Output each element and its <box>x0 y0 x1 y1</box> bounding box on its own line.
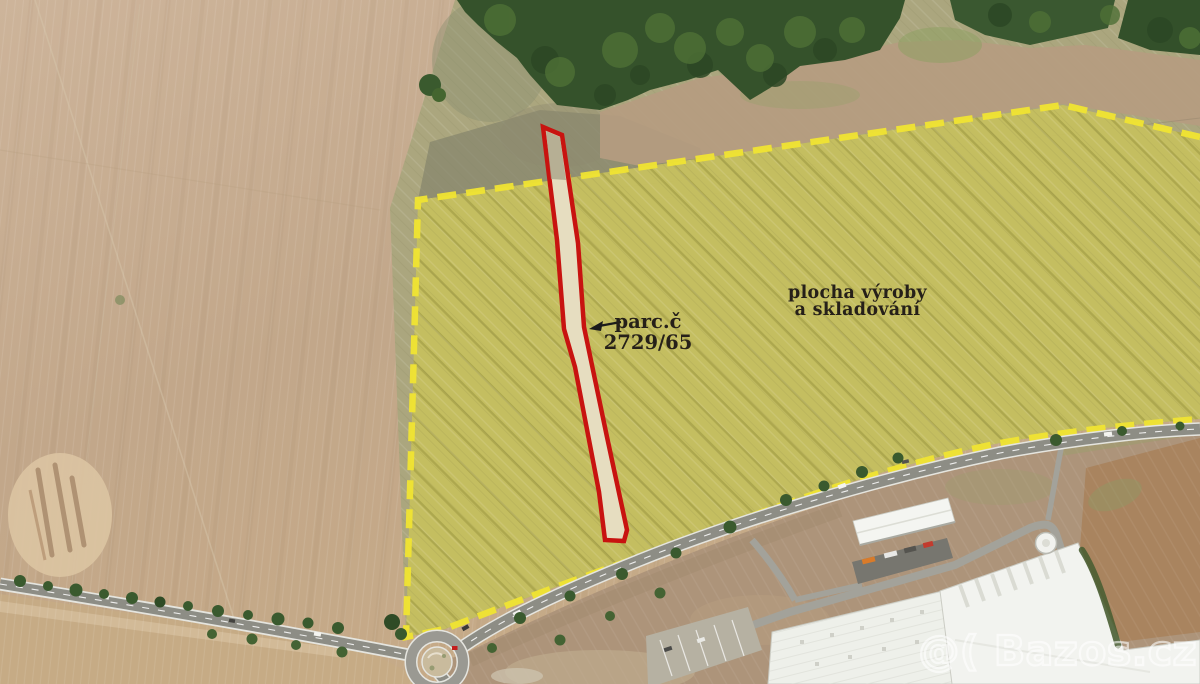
excavation-patch <box>8 453 112 577</box>
storage-tank <box>1036 533 1057 554</box>
aerial-map-canvas <box>0 0 1200 684</box>
aerial-map: plocha výroby a skladování parc.č 2729/6… <box>0 0 1200 684</box>
